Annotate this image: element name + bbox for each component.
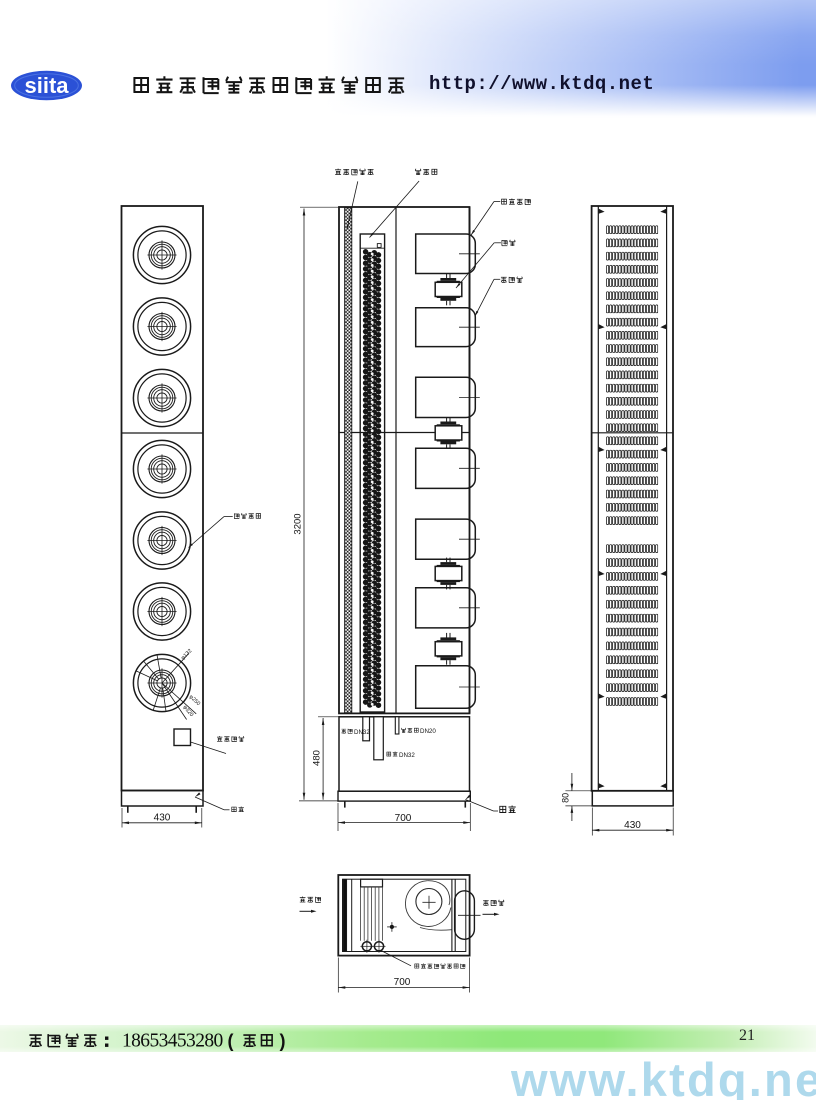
svg-text:480: 480	[312, 750, 323, 766]
svg-text:18653453280: 18653453280	[122, 1031, 223, 1052]
svg-text:700: 700	[395, 813, 412, 824]
svg-text:430: 430	[624, 820, 641, 831]
svg-text:430: 430	[154, 813, 171, 824]
svg-text:700: 700	[394, 977, 411, 988]
svg-text:φ250: φ250	[188, 694, 201, 707]
svg-text:DN32: DN32	[354, 729, 370, 736]
svg-text:3200: 3200	[293, 513, 304, 534]
svg-text:): )	[280, 1031, 286, 1051]
svg-text:φ320: φ320	[181, 704, 194, 718]
svg-text:DN32: DN32	[399, 752, 415, 759]
svg-text:DN20: DN20	[420, 728, 436, 735]
svg-text:siita: siita	[24, 73, 69, 98]
svg-text:80: 80	[560, 793, 570, 803]
svg-text:φ132: φ132	[180, 648, 193, 661]
svg-text:(: (	[228, 1031, 234, 1051]
